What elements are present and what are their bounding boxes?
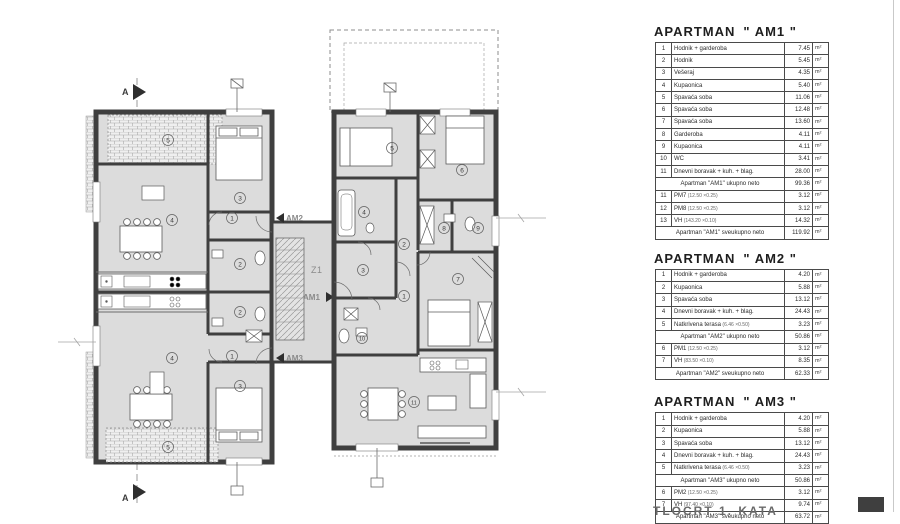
svg-text:5: 5	[166, 138, 170, 145]
title-prefix: APARTMAN	[654, 24, 735, 39]
terrace-am2	[108, 115, 222, 164]
svg-text:3: 3	[238, 384, 242, 391]
bed-am2	[216, 126, 262, 180]
area-tables-panel: APARTMAN" AM1 " 1Hodnik + garderoba7.45m…	[652, 0, 898, 524]
svg-text:3: 3	[361, 268, 365, 275]
table-row: 3Spavaća soba13.12m²	[656, 438, 829, 450]
title-prefix: APARTMAN	[654, 394, 735, 409]
svg-text:10: 10	[359, 336, 365, 342]
svg-text:2: 2	[238, 310, 242, 317]
apartment-title-am2: APARTMAN" AM2 "	[654, 251, 898, 266]
table-row: 4Dnevni boravak + kuh. + blag.24.43m²	[656, 450, 829, 462]
table-row: 5Natkrivena terasa (6.46 ×0.50)3.23m²	[656, 462, 829, 474]
table-row: 3Vešeraj4.35m²	[656, 67, 829, 79]
section-label-top: A	[122, 87, 129, 97]
table-summary-row: Apartman "AM1" ukupno neto99.36m²	[656, 178, 829, 190]
unit-label-am1: AM1	[303, 293, 320, 302]
sheet-caption: TLOCRT 1. KATA	[653, 504, 778, 518]
table-row: 4Dnevni boravak + kuh. + blag.24.43m²	[656, 306, 829, 318]
bed-am3	[216, 388, 262, 442]
svg-text:4: 4	[170, 218, 174, 225]
table-row: 7VH (83.50 ×0.10)8.35m²	[656, 355, 829, 367]
table-row: 1Hodnik + garderoba4.20m²	[656, 269, 829, 281]
table-summary-row: Apartman "AM2" sveukupno neto62.33m²	[656, 368, 829, 380]
stair-treads	[276, 238, 304, 340]
svg-text:4: 4	[362, 210, 366, 217]
table-row: 2Kupaonica5.88m²	[656, 282, 829, 294]
title-name: " AM1 "	[743, 24, 797, 39]
bed-room7	[428, 300, 470, 346]
section-arrow-top-icon	[133, 84, 146, 100]
table-row: 5Natkrivena terasa (6.46 ×0.50)3.23m²	[656, 318, 829, 330]
bed-room5	[340, 128, 392, 166]
unit-label-am3: AM3	[286, 354, 303, 363]
apartment-table-am2: APARTMAN" AM2 " 1Hodnik + garderoba4.20m…	[652, 240, 898, 381]
table-row: 11Dnevni boravak + kuh. + blag.28.00m²	[656, 165, 829, 177]
apartment-title-am3: APARTMAN" AM3 "	[654, 394, 898, 409]
table-summary-row: Apartman "AM3" ukupno neto50.86m²	[656, 474, 829, 486]
table-row: 4Kupaonica5.40m²	[656, 79, 829, 91]
shaft-icon	[246, 330, 262, 342]
terrace-am3	[106, 428, 218, 462]
left-building	[93, 109, 272, 465]
table-row: 6PM2 (12.50 ×0.25)3.12m²	[656, 487, 829, 499]
side-table-am2	[142, 186, 164, 200]
svg-text:7: 7	[456, 277, 460, 284]
table-row: 10WC3.41m²	[656, 153, 829, 165]
table-row: 13VH (143.20 ×0.10)14.32m²	[656, 215, 829, 227]
table-row: 2Kupaonica5.88m²	[656, 425, 829, 437]
table-row: 2Hodnik5.45m²	[656, 55, 829, 67]
svg-text:5: 5	[166, 445, 170, 452]
kitchen-am3	[98, 294, 206, 309]
unit-label-am2: AM2	[286, 214, 303, 223]
table-row: 7Spavaća soba13.60m²	[656, 116, 829, 128]
title-name: " AM3 "	[743, 394, 797, 409]
bathtub-icon	[338, 190, 355, 236]
bed-room6	[446, 116, 484, 164]
svg-text:5: 5	[390, 146, 394, 153]
svg-text:1: 1	[230, 354, 234, 361]
sheet-border	[893, 0, 894, 512]
table-row: 1Hodnik + garderoba7.45m²	[656, 43, 829, 55]
table-row: 6PM1 (12.50 ×0.25)3.12m²	[656, 343, 829, 355]
area-table: 1Hodnik + garderoba4.20m²2Kupaonica5.88m…	[655, 269, 829, 381]
table-row: 5Spavaća soba11.06m²	[656, 92, 829, 104]
svg-text:8: 8	[442, 226, 446, 233]
table-row: 6Spavaća soba12.48m²	[656, 104, 829, 116]
kitchen-am2	[98, 274, 206, 289]
side-table-am3	[150, 372, 164, 394]
svg-text:1: 1	[230, 216, 234, 223]
svg-text:2: 2	[402, 242, 406, 249]
apartment-title-am1: APARTMAN" AM1 "	[654, 24, 898, 39]
svg-text:3: 3	[238, 196, 242, 203]
table-row: 1Hodnik + garderoba4.20m²	[656, 413, 829, 425]
table-summary-row: Apartman "AM2" ukupno neto50.86m²	[656, 331, 829, 343]
section-label-bottom: A	[122, 493, 129, 503]
apartment-table-am1: APARTMAN" AM1 " 1Hodnik + garderoba7.45m…	[652, 0, 898, 240]
section-arrow-bottom-icon	[133, 484, 146, 500]
table-row: 8Garderoba4.11m²	[656, 129, 829, 141]
table-summary-row: Apartman "AM1" sveukupno neto119.92m²	[656, 227, 829, 239]
dining-table-am1	[361, 388, 406, 420]
svg-text:6: 6	[460, 168, 464, 175]
svg-text:4: 4	[170, 356, 174, 363]
title-name: " AM2 "	[743, 251, 797, 266]
svg-text:1: 1	[402, 294, 406, 301]
roof-outline	[330, 30, 498, 112]
table-row: 11PM7 (12.50 ×0.25)3.12m²	[656, 190, 829, 202]
stair-label: Z1	[311, 265, 323, 275]
title-prefix: APARTMAN	[654, 251, 735, 266]
svg-text:2: 2	[238, 262, 242, 269]
svg-text:9: 9	[476, 226, 480, 233]
table-row: 9Kupaonica4.11m²	[656, 141, 829, 153]
title-block-mark	[858, 497, 884, 512]
table-row: 3Spavaća soba13.12m²	[656, 294, 829, 306]
area-table: 1Hodnik + garderoba7.45m²2Hodnik5.45m²3V…	[655, 42, 829, 240]
floor-plan: A A	[0, 0, 650, 512]
table-row: 12PM8 (12.50 ×0.25)3.12m²	[656, 202, 829, 214]
stairwell: Z1	[272, 222, 334, 362]
svg-text:11: 11	[411, 400, 417, 406]
